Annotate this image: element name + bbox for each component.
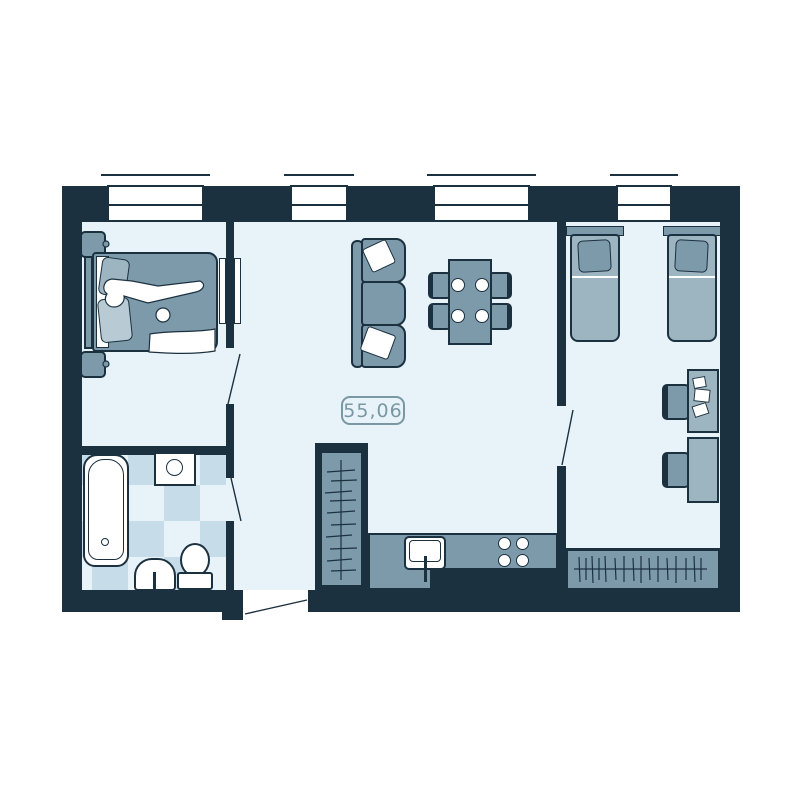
desk-1-paper-2 (693, 388, 710, 403)
window-sill-1 (101, 174, 210, 176)
window-pane (618, 204, 670, 206)
area-label-text: 55,06 (343, 400, 402, 422)
single-bed-b-pillow (674, 239, 709, 273)
burner-1 (498, 537, 511, 550)
window-pane (435, 204, 528, 206)
wall-panel-living-side (234, 258, 241, 324)
kitchen-faucet (424, 556, 427, 582)
plate-3 (451, 309, 465, 323)
sofa-seat-2 (361, 281, 406, 326)
entrance-jamb (222, 590, 243, 620)
wall-bathroom-right-lower (226, 521, 234, 590)
single-bed-a-pillow (577, 239, 612, 273)
wardrobe (566, 548, 720, 590)
burner-3 (498, 554, 511, 567)
wall-living-rightroom-upper (557, 222, 566, 406)
single-bed-b-fold (669, 276, 715, 278)
entrance-door-leaf (245, 600, 307, 614)
desk-chair-2 (662, 452, 690, 488)
area-label: 55,06 (341, 396, 405, 425)
window-2 (290, 185, 348, 222)
wall-living-rightroom-lower (557, 466, 566, 590)
toilet-tank (177, 572, 213, 590)
wall-bottom-right (308, 590, 740, 612)
desk-2 (687, 437, 719, 503)
bed-pillow-2 (97, 296, 133, 343)
desk-chair-1 (662, 384, 690, 420)
plate-4 (475, 309, 489, 323)
burner-4 (516, 554, 529, 567)
window-4 (616, 185, 672, 222)
burner-2 (516, 537, 529, 550)
floorplan-canvas: 55,06 (0, 0, 800, 800)
window-sill-2 (284, 174, 354, 176)
plate-1 (451, 278, 465, 292)
dining-table (448, 259, 492, 345)
window-1 (107, 185, 204, 222)
window-sill-3 (427, 174, 536, 176)
plate-2 (475, 278, 489, 292)
window-pane (292, 204, 346, 206)
wall-left (62, 186, 82, 612)
window-pane (109, 204, 202, 206)
wall-right (720, 186, 740, 612)
wall-bottom-left (62, 590, 243, 612)
double-bed-headboard (84, 256, 93, 349)
desk-1-paper-1 (692, 376, 707, 389)
wall-bathroom-right-upper (226, 455, 234, 478)
hall-closet-interior (322, 453, 361, 585)
bathroom-sink-tap (153, 572, 156, 590)
window-3 (433, 185, 530, 222)
kitchen-base-block (430, 568, 557, 590)
washing-machine-door (166, 459, 183, 476)
bathtub-drain (101, 538, 109, 546)
nightstand-bottom (80, 351, 106, 378)
single-bed-a-fold (572, 276, 618, 278)
wall-panel-bedroom-side (219, 258, 226, 324)
window-sill-4 (610, 174, 678, 176)
bed-pillow-1 (97, 256, 130, 298)
wall-bedroom-living (226, 222, 234, 348)
